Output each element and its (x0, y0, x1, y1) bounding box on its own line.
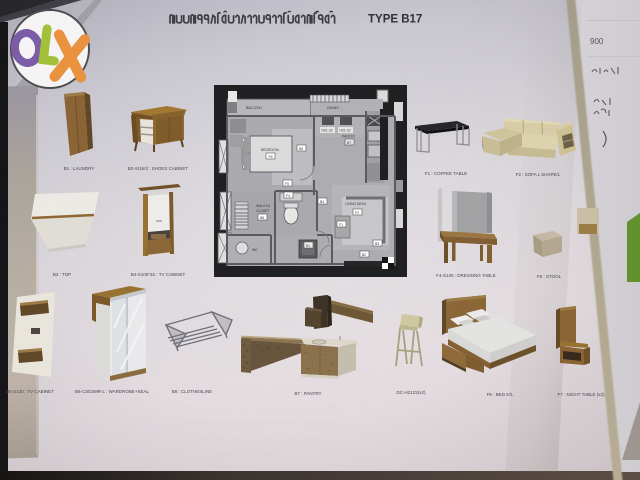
svg-text:F5: F5 (285, 182, 289, 186)
svg-text:F4: F4 (286, 194, 290, 198)
svg-text:B6: B6 (260, 216, 264, 220)
svg-text:B4: B4 (320, 200, 324, 204)
svg-text:B5: B5 (299, 147, 303, 151)
svg-text:B3: B3 (375, 242, 379, 246)
svg-text:WALK IN: WALK IN (256, 204, 270, 208)
svg-text:PANTRY: PANTRY (342, 135, 356, 139)
svg-text:F2: F2 (355, 211, 359, 215)
svg-text:B1: B1 (306, 244, 310, 248)
svg-text:LIVING AREA: LIVING AREA (345, 202, 367, 206)
svg-text:B2: B2 (362, 253, 366, 257)
svg-text:B7: B7 (347, 141, 351, 145)
svg-text:BEDROOM: BEDROOM (261, 148, 279, 152)
svg-text:BALCONY: BALCONY (246, 106, 263, 110)
svg-text:F6: F6 (269, 155, 273, 159)
svg-text:DINING: DINING (327, 106, 339, 110)
svg-text:H21-22: H21-22 (322, 129, 333, 133)
svg-text:900: 900 (590, 37, 604, 46)
svg-text:H21-22: H21-22 (340, 129, 351, 133)
svg-text:F1: F1 (339, 223, 343, 227)
svg-text:WC: WC (252, 248, 258, 252)
svg-text:CLOSET: CLOSET (256, 209, 270, 213)
svg-text:TYPE B17: TYPE B17 (368, 14, 422, 26)
